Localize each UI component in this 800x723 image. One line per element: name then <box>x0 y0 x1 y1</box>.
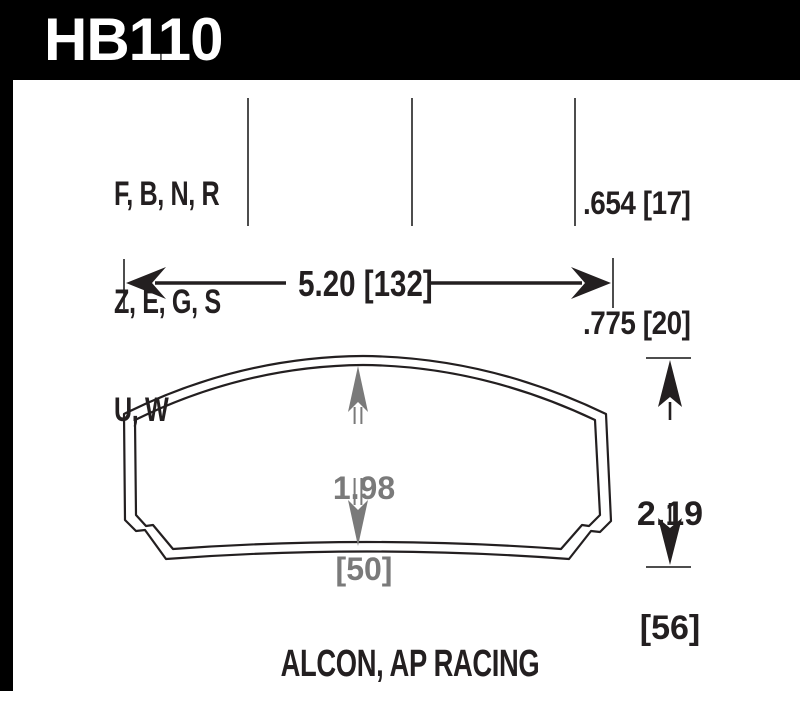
compound-codes-line: F, B, N, R <box>114 176 221 212</box>
compound-codes-line: Z, E, G, S <box>114 284 221 320</box>
spec-divider-lines <box>248 98 575 226</box>
compound-codes: F, B, N, R Z, E, G, S U, W <box>114 104 221 500</box>
width-dimension-label: 5.20 [132] <box>298 264 418 304</box>
pad-height-mm: [50] <box>314 556 414 583</box>
overall-height-inches: 2.19 <box>620 495 720 533</box>
pad-thickness-values: .654 [17] .775 [20] <box>583 103 691 423</box>
overall-height-mm: [56] <box>620 609 720 647</box>
applications-label: ALCON, AP RACING <box>115 643 705 686</box>
thickness-value: .775 [20] <box>583 303 691 343</box>
pad-height-up-arrowhead <box>348 366 368 412</box>
pad-height-inches: 1.98 <box>314 475 414 502</box>
pad-height-dimension-label: 1.98 [50] <box>314 421 414 637</box>
compound-codes-line: U, W <box>114 392 221 428</box>
thickness-value: .654 [17] <box>583 183 691 223</box>
